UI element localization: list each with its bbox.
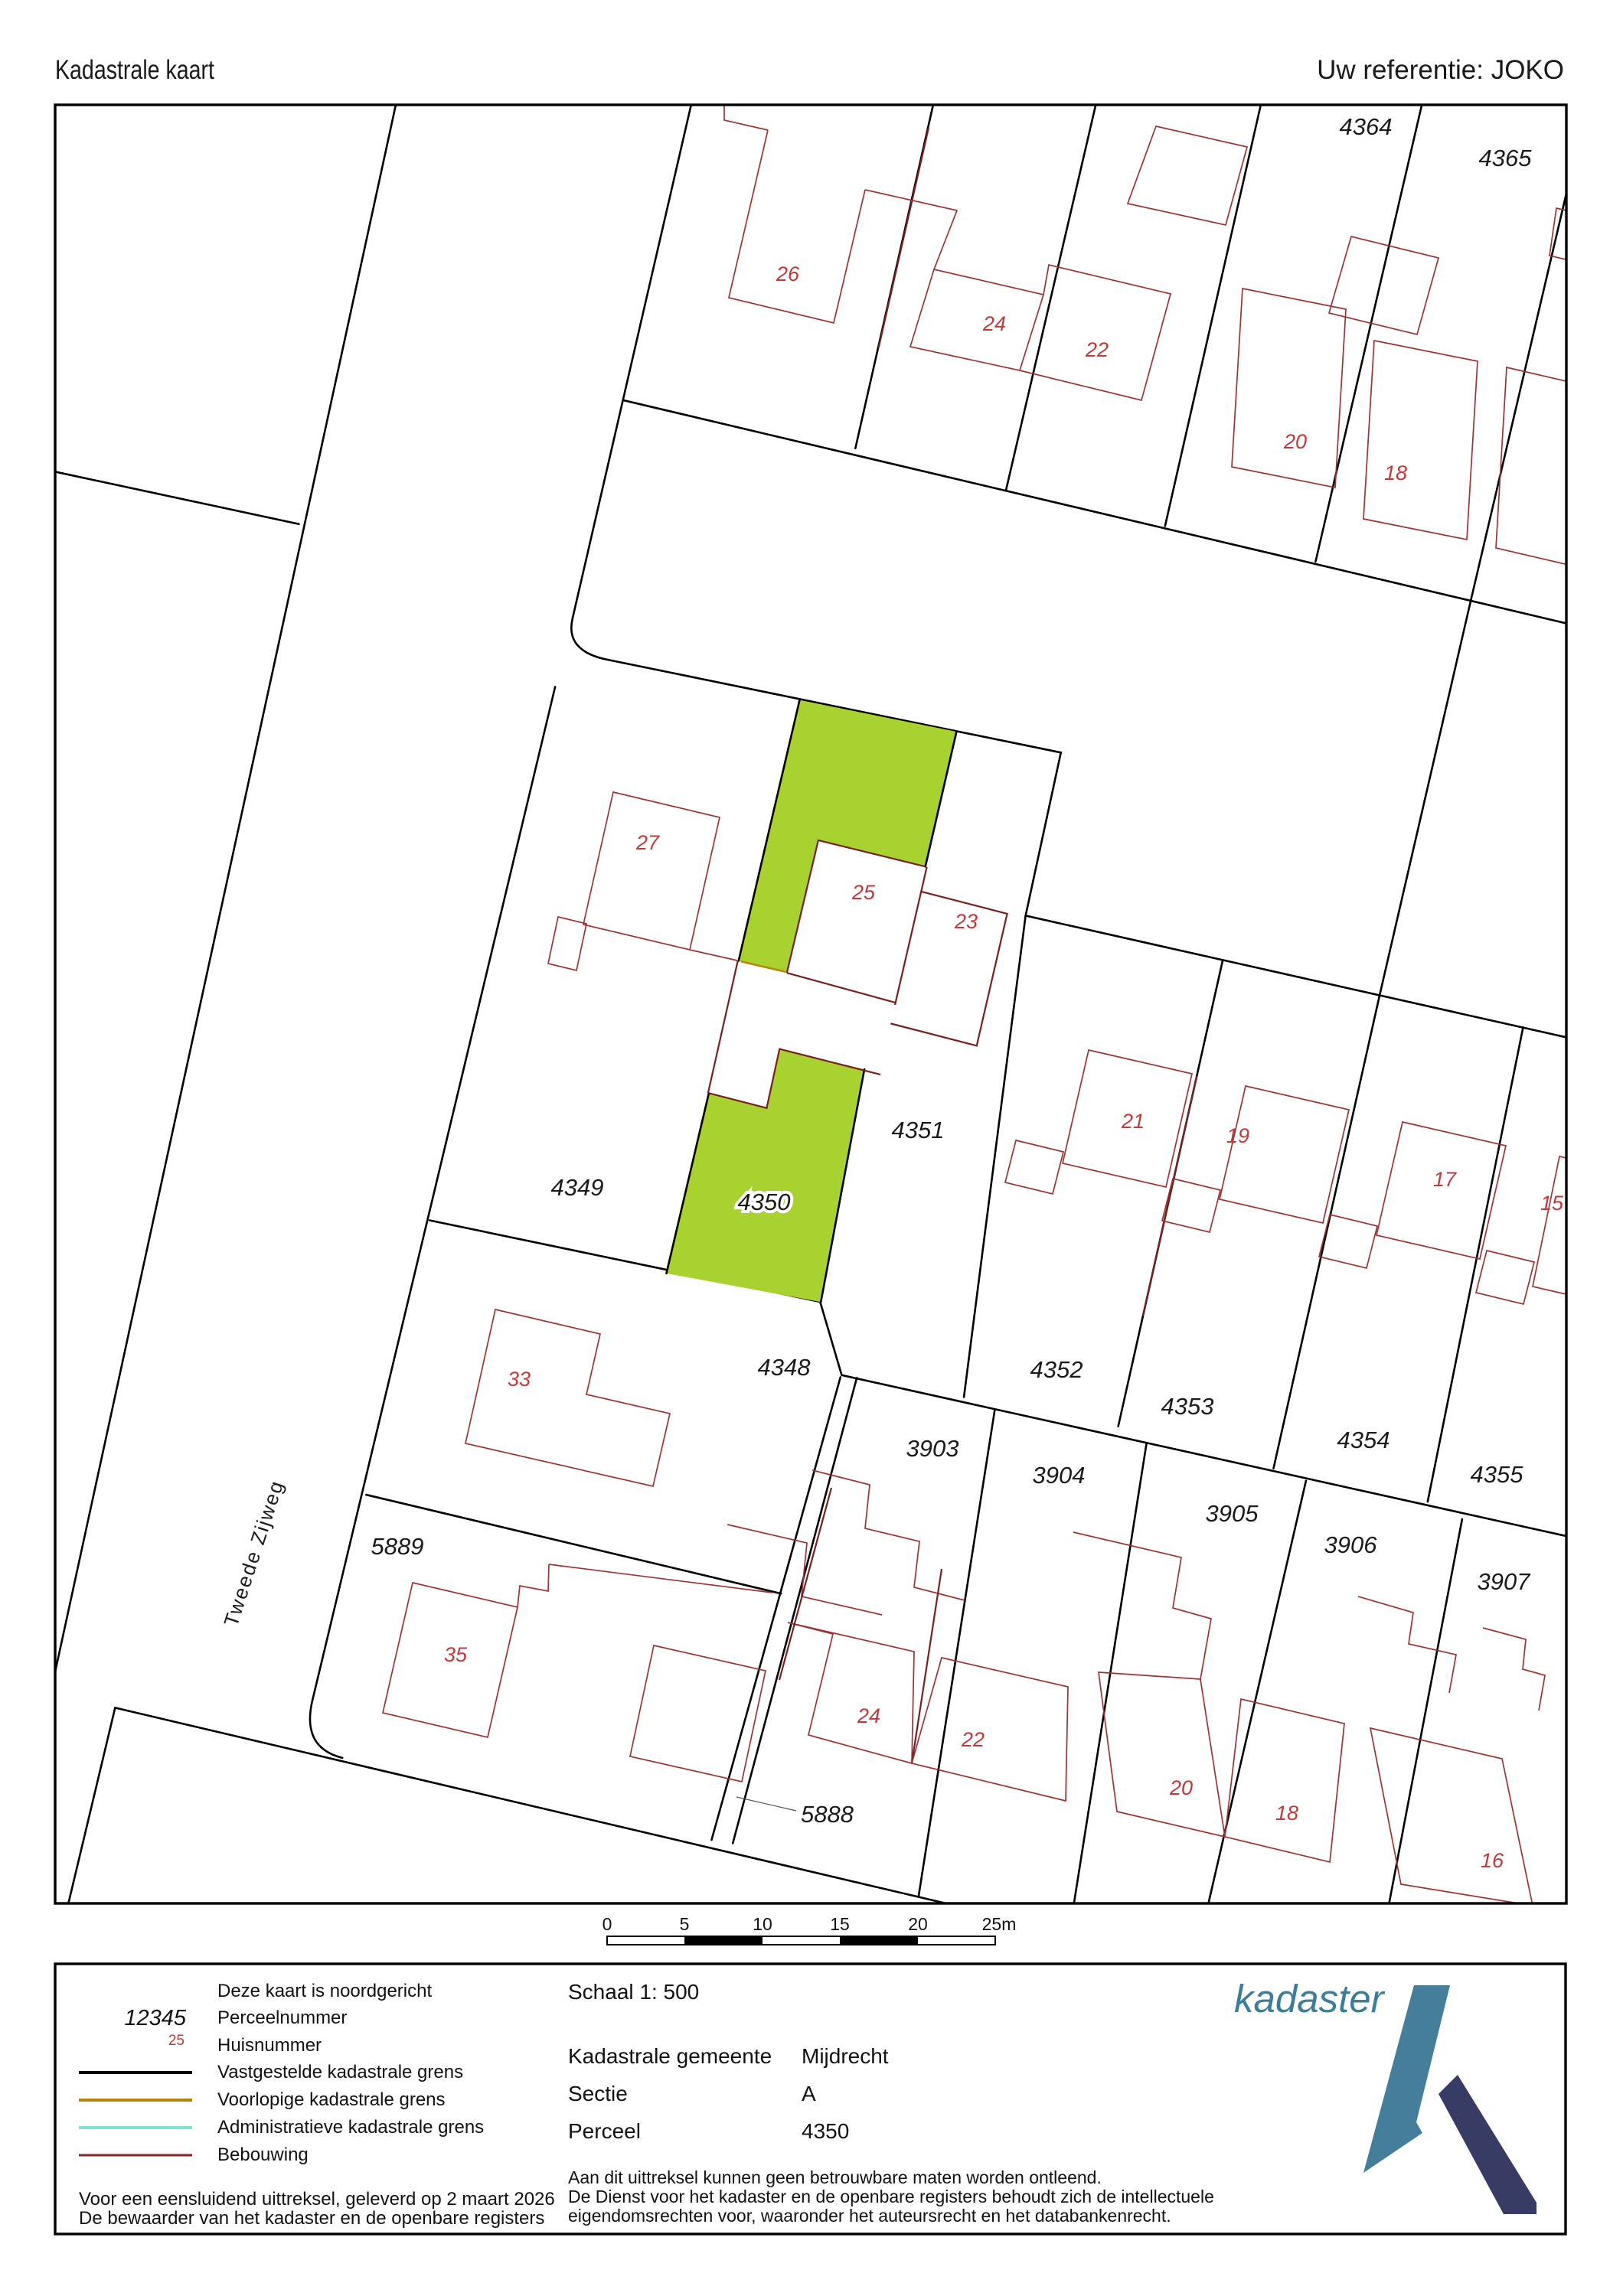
svg-text:23: 23 [954,910,978,933]
svg-text:18: 18 [1384,461,1407,484]
svg-text:A: A [802,2082,816,2105]
svg-text:eigendomsrechten voor, waarond: eigendomsrechten voor, waaronder het aut… [568,2206,1171,2226]
svg-text:0: 0 [603,1914,612,1934]
svg-text:20: 20 [908,1914,928,1934]
svg-text:5: 5 [680,1914,690,1934]
svg-text:15: 15 [1540,1192,1564,1215]
svg-text:kadaster: kadaster [1234,1977,1386,2020]
svg-text:22: 22 [961,1728,985,1751]
svg-text:10: 10 [753,1914,772,1934]
svg-text:Voorlopige kadastrale grens: Voorlopige kadastrale grens [217,2089,446,2110]
svg-text:21: 21 [1121,1110,1145,1133]
svg-text:33: 33 [508,1368,531,1391]
svg-text:3905: 3905 [1206,1500,1259,1527]
svg-text:3904: 3904 [1033,1462,1086,1489]
svg-text:16: 16 [1481,1849,1504,1872]
svg-text:25m: 25m [982,1914,1017,1934]
svg-text:5889: 5889 [371,1533,424,1560]
svg-text:25: 25 [168,2033,185,2049]
svg-text:4351: 4351 [892,1117,945,1143]
svg-text:Kadastrale kaart: Kadastrale kaart [55,55,214,85]
svg-text:4349: 4349 [551,1174,604,1201]
svg-text:Perceel: Perceel [568,2119,641,2143]
svg-text:4365: 4365 [1479,145,1533,171]
svg-text:Schaal 1: 500: Schaal 1: 500 [568,1980,699,2004]
svg-text:19: 19 [1226,1124,1249,1147]
svg-text:Vastgestelde kadastrale grens: Vastgestelde kadastrale grens [217,2062,463,2082]
svg-text:De bewaarder van het kadaster: De bewaarder van het kadaster en de open… [79,2208,544,2229]
svg-text:De Dienst voor het kadaster en: De Dienst voor het kadaster en de openba… [568,2187,1214,2206]
svg-text:4364: 4364 [1340,113,1393,140]
svg-text:4355: 4355 [1471,1461,1524,1488]
svg-text:Kadastrale gemeente: Kadastrale gemeente [568,2044,772,2068]
svg-text:12345: 12345 [124,2006,187,2030]
svg-text:24: 24 [982,312,1006,335]
svg-text:4350: 4350 [802,2119,849,2143]
svg-text:Administratieve kadastrale gre: Administratieve kadastrale grens [217,2117,484,2138]
svg-text:Bebouwing: Bebouwing [217,2144,309,2165]
svg-text:27: 27 [635,831,660,854]
svg-text:4352: 4352 [1030,1356,1083,1383]
svg-text:Huisnummer: Huisnummer [217,2035,322,2056]
svg-text:Mijdrecht: Mijdrecht [802,2044,889,2068]
svg-text:18: 18 [1275,1802,1298,1825]
svg-text:17: 17 [1433,1168,1457,1191]
svg-text:4354: 4354 [1337,1427,1390,1453]
svg-text:20: 20 [1283,430,1307,453]
svg-text:Deze kaart is noordgericht: Deze kaart is noordgericht [217,1981,432,2001]
svg-text:Sectie: Sectie [568,2082,628,2105]
svg-text:25: 25 [851,881,876,904]
svg-text:20: 20 [1169,1776,1193,1799]
svg-text:15: 15 [830,1914,850,1934]
svg-text:3903: 3903 [906,1435,959,1462]
svg-text:26: 26 [776,263,800,285]
svg-text:24: 24 [857,1704,880,1727]
svg-text:3906: 3906 [1324,1531,1378,1558]
svg-text:Aan dit uittreksel kunnen geen: Aan dit uittreksel kunnen geen betrouwba… [568,2167,1102,2187]
svg-text:Perceelnummer: Perceelnummer [217,2007,347,2028]
svg-text:Voor een eensluidend uittrekse: Voor een eensluidend uittreksel, gelever… [79,2189,555,2210]
svg-text:35: 35 [444,1643,468,1666]
svg-text:4350: 4350 [738,1189,791,1215]
svg-text:5888: 5888 [801,1801,854,1828]
svg-text:22: 22 [1085,338,1109,361]
svg-text:4348: 4348 [758,1354,811,1381]
svg-text:Uw referentie: JOKO: Uw referentie: JOKO [1317,55,1564,85]
svg-text:4353: 4353 [1161,1393,1214,1420]
svg-text:3907: 3907 [1478,1568,1532,1595]
